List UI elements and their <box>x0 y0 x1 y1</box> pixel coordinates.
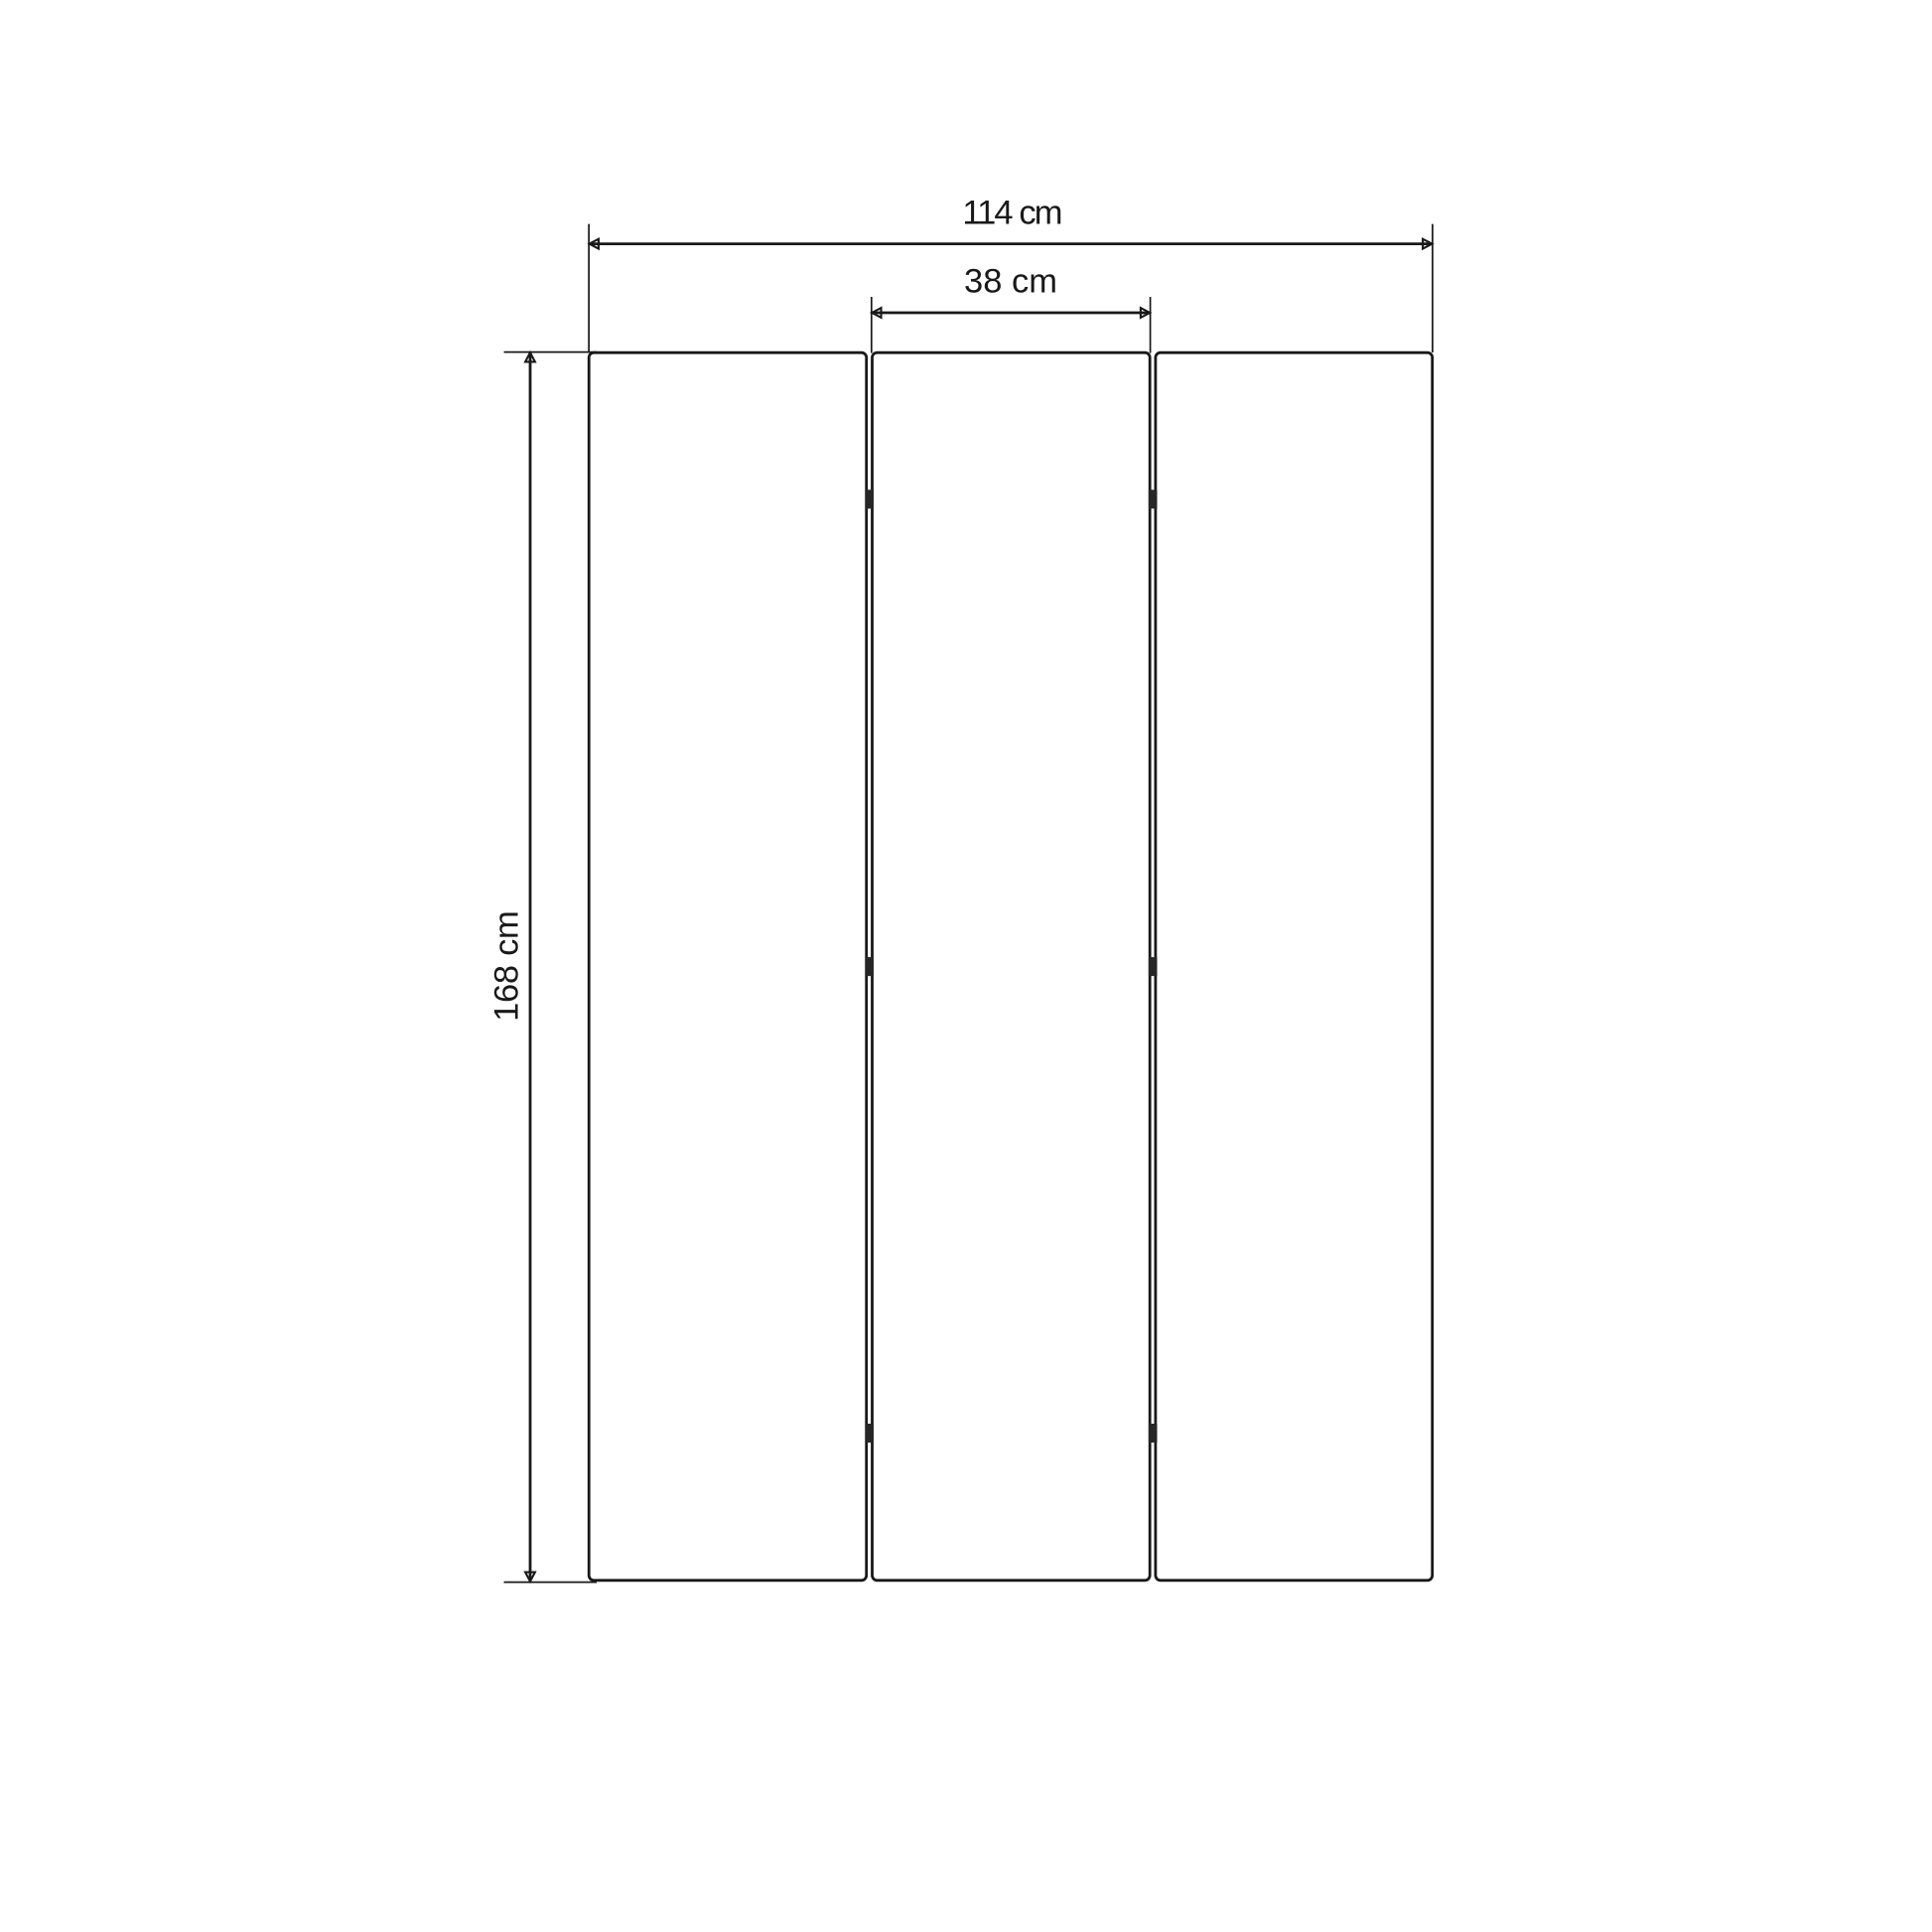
svg-text:114 cm: 114 cm <box>962 195 1060 232</box>
svg-text:38 cm: 38 cm <box>964 263 1057 301</box>
svg-text:168 cm: 168 cm <box>488 911 526 1022</box>
